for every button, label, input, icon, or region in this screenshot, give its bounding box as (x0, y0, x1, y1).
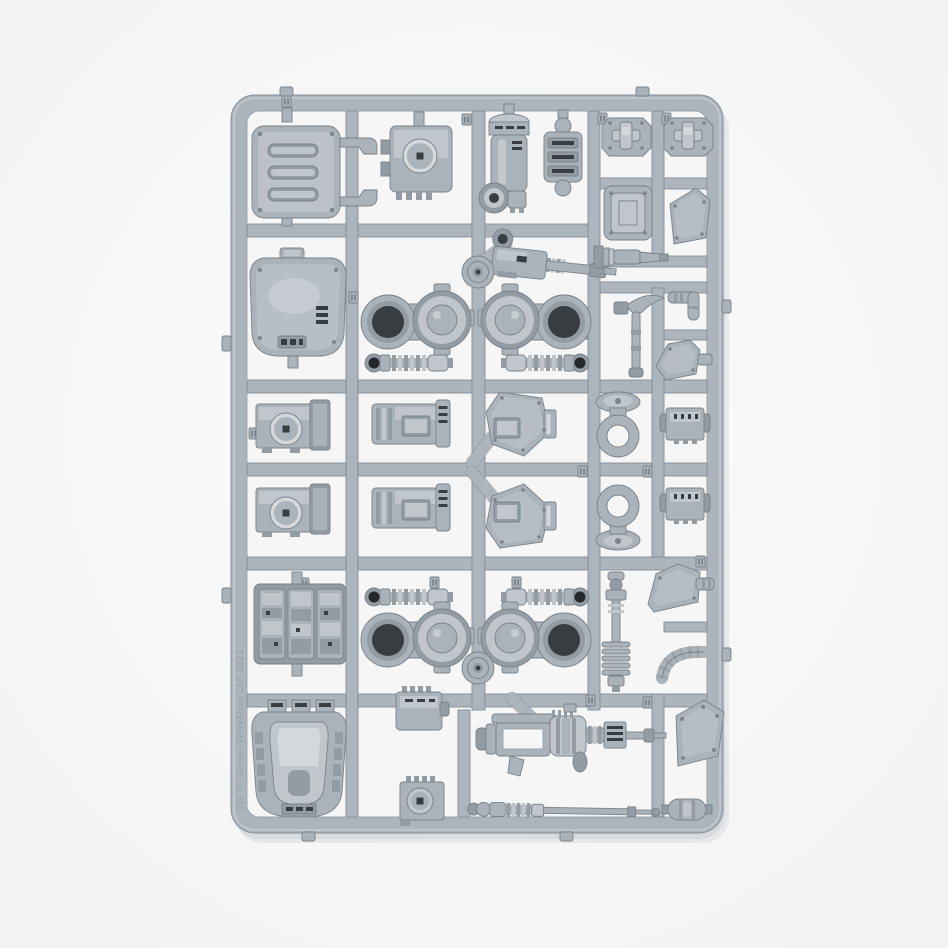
part-foot-pad-left (602, 118, 651, 156)
molded-copyright-text: GW © Games Workshop Ltd 2022 (236, 649, 246, 812)
part-hub-upper (462, 256, 494, 288)
part-engine-block (254, 572, 346, 676)
part-vent-box-upper (660, 408, 710, 444)
part-vent-box-lower (660, 488, 710, 524)
part-square-panel (604, 186, 652, 240)
part-panel-box-lower (372, 484, 450, 531)
part-cockpit-carapace (252, 700, 347, 816)
part-hub-lower (462, 652, 494, 684)
sprue-photo: GW © Games Workshop Ltd 2022 (0, 0, 948, 948)
part-ring-mount-upper (596, 392, 640, 457)
part-sensor-box-lower (256, 484, 330, 537)
part-ring-mount-lower (596, 485, 640, 550)
part-panel-box-upper (372, 400, 450, 447)
part-foot-pad-right (664, 118, 713, 156)
photo-backdrop: GW © Games Workshop Ltd 2022 (0, 0, 948, 948)
part-lens-box-small (400, 776, 444, 826)
part-sensor-box-upper (256, 400, 330, 453)
part-armored-hatch (250, 248, 346, 368)
